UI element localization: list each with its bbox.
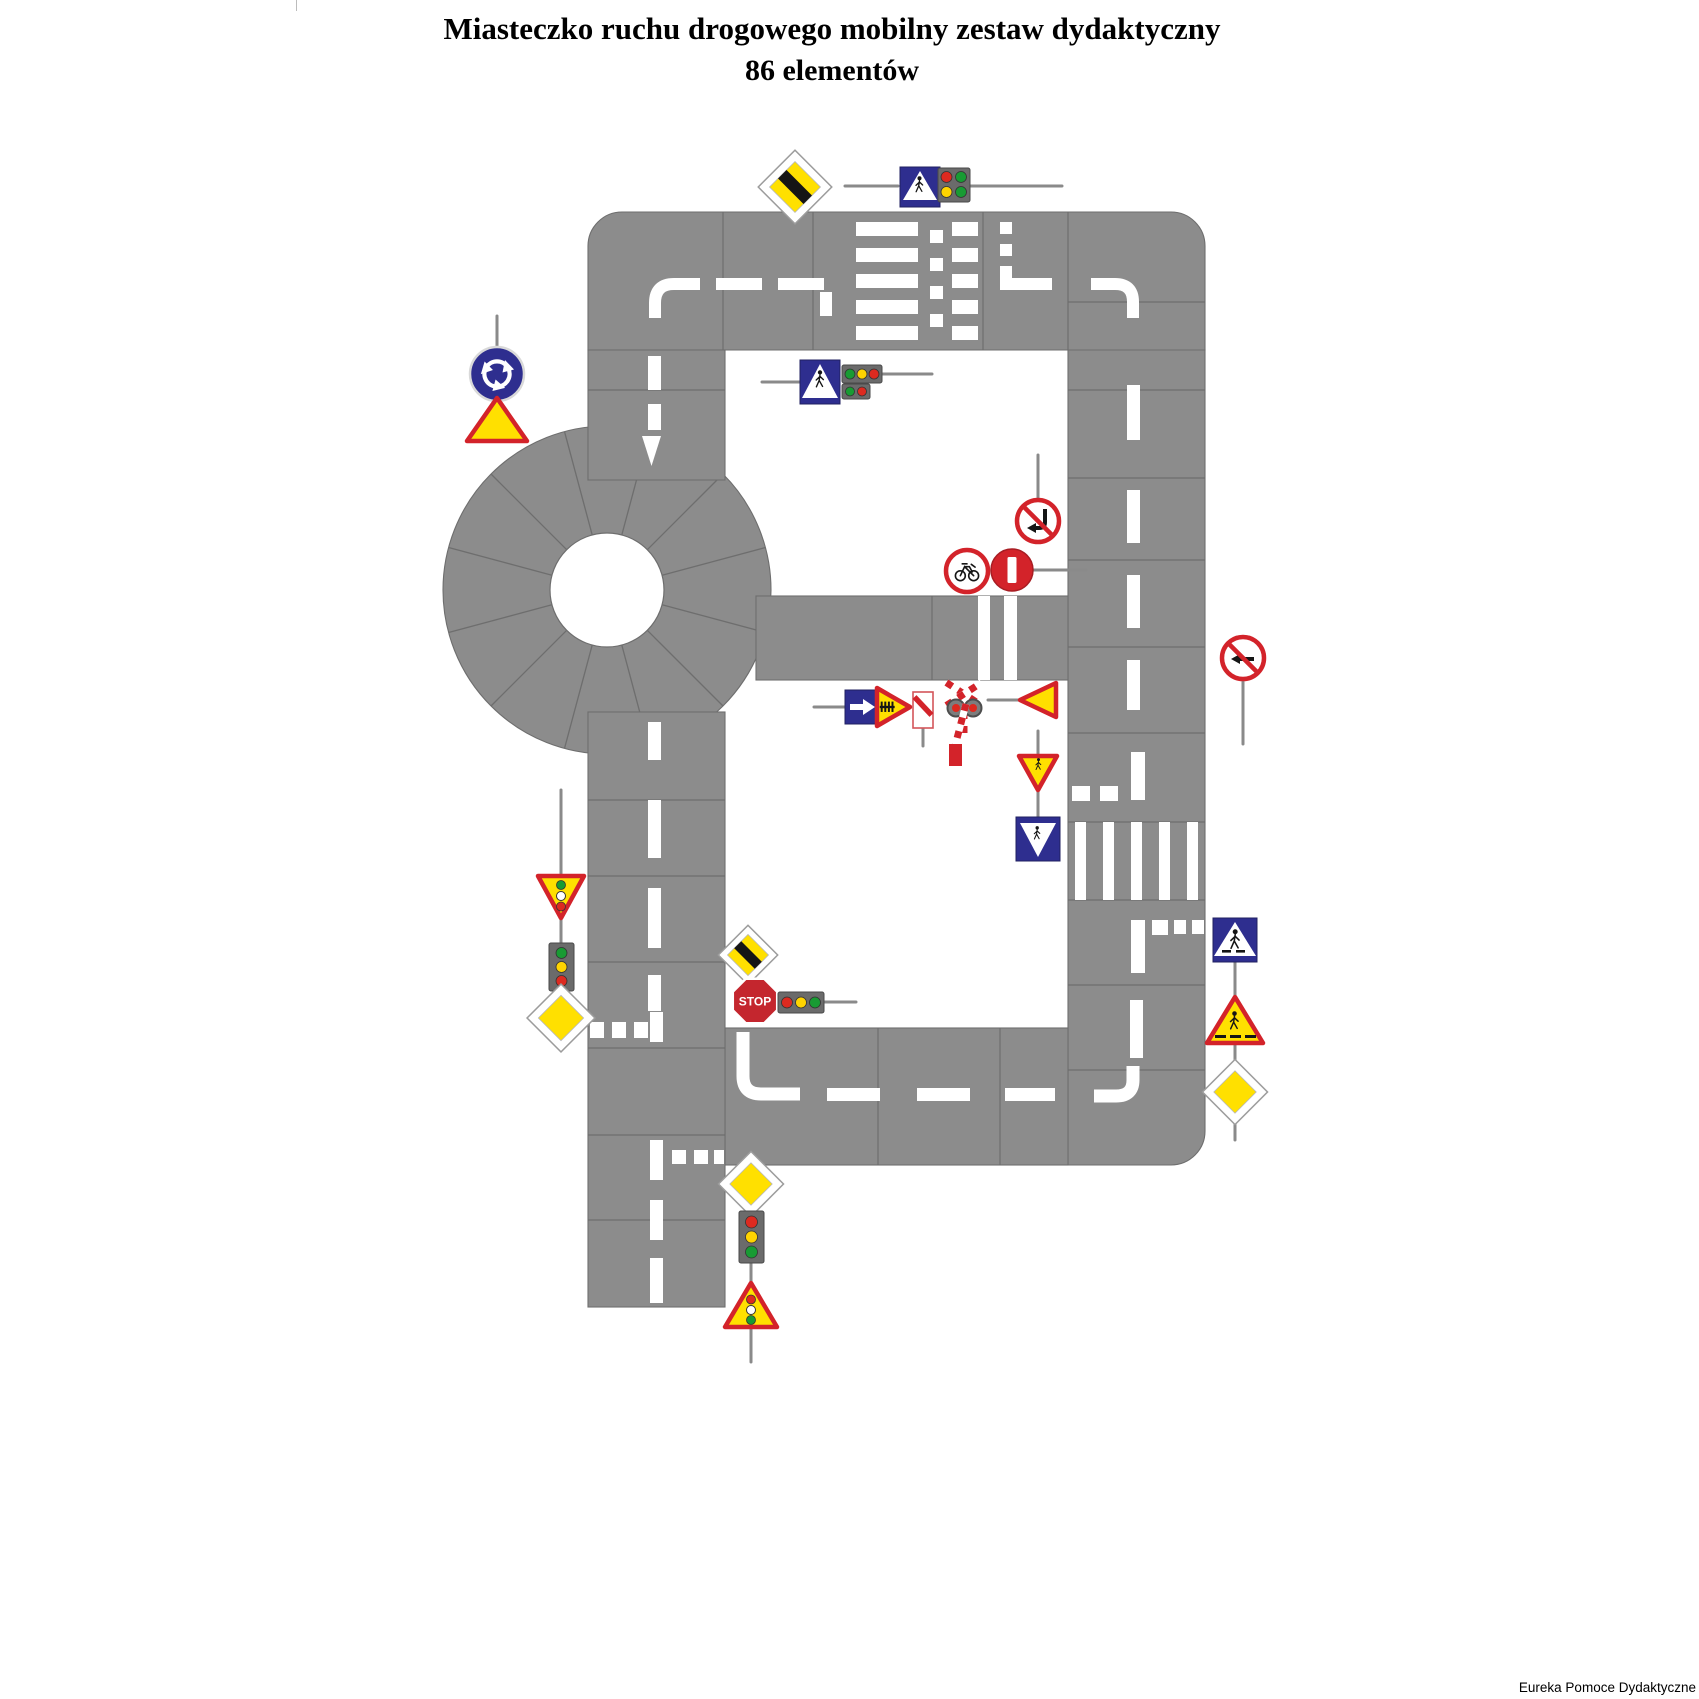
pedestrian-crossing-sign-top-icon: [900, 167, 940, 207]
stop-sign-label: STOP: [739, 995, 771, 1009]
vendor-credit: Eureka Pomoce Dydaktyczne: [1519, 1680, 1696, 1695]
crossing-square-sign-mid-icon: [1016, 817, 1060, 861]
traffic-signal-warning-down-left-icon: [538, 876, 584, 918]
page: Miasteczko ruchu drogowego mobilny zesta…: [0, 0, 1699, 1699]
countdown-marker-icon: [913, 692, 933, 728]
warning-triangle-down-mid-icon: [1019, 756, 1057, 790]
traffic-signal-warning-up-bottom-icon: [725, 1283, 777, 1327]
no-entry-icon: [991, 549, 1033, 591]
priority-road-diamond-left-icon: [527, 984, 595, 1052]
no-left-turn-inner-icon: [1017, 500, 1059, 542]
stop-sign-icon: STOP: [733, 979, 777, 1023]
st-andrews-cross-with-barrier-icon: [946, 683, 981, 766]
traffic-light-horizontal-inner-icon: [842, 365, 882, 399]
pedestrian-crossing-sign-inner-icon: [800, 360, 840, 404]
railway-spur-road: [756, 596, 1068, 680]
traffic-light-vertical-bottom-icon: [739, 1211, 764, 1263]
pedestrian-crossing-sign-right-icon: [1213, 918, 1257, 962]
no-bicycles-icon: [946, 550, 988, 592]
priority-road-diamond-right-icon: [1202, 1059, 1267, 1124]
traffic-town-map: STOP: [0, 0, 1699, 1699]
roundabout-island: [550, 533, 664, 647]
traffic-light-horizontal-top-icon: [938, 168, 970, 202]
railway-crossing-warning-triangle-icon: [877, 688, 910, 726]
mandatory-right-arrow-icon: [845, 690, 879, 724]
end-of-priority-diamond-stop-icon: [718, 925, 777, 984]
pedestrian-warning-triangle-right-icon: [1207, 997, 1263, 1043]
yield-triangle-left-icon: [1020, 683, 1056, 717]
roundabout-warning-triangle-icon: [467, 398, 527, 441]
traffic-light-horizontal-stop-icon: [778, 992, 824, 1013]
no-left-turn-right-side-icon: [1222, 637, 1264, 679]
roundabout-sign-icon: [470, 347, 524, 401]
